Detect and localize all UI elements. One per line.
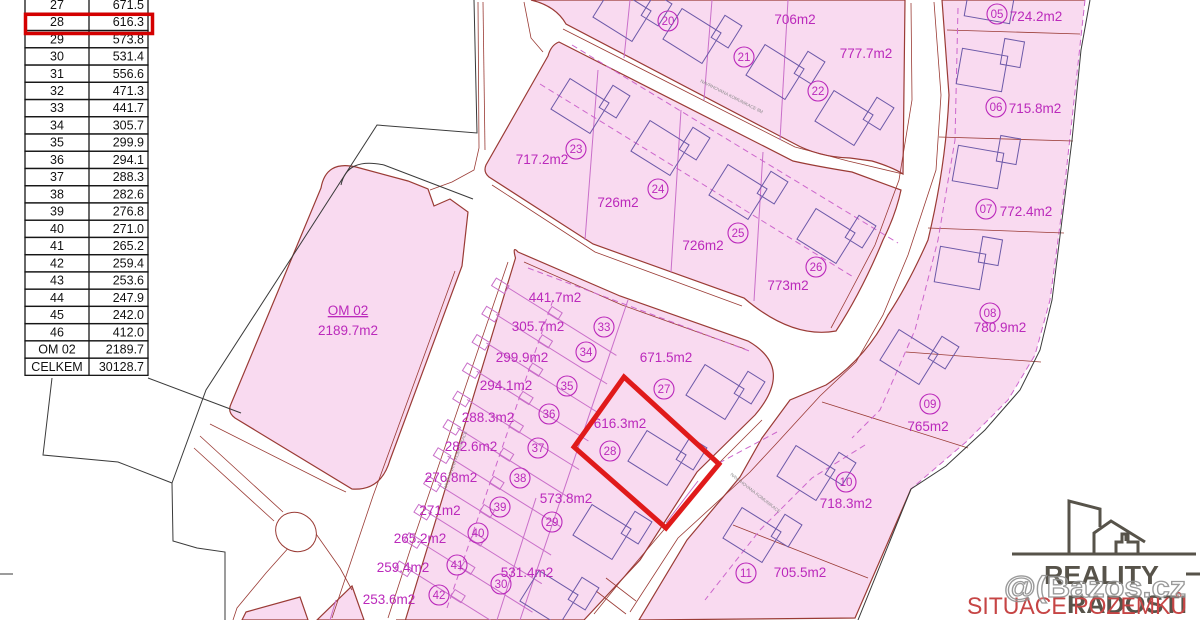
svg-text:671.5m2: 671.5m2 xyxy=(640,350,693,365)
svg-text:CELKEM: CELKEM xyxy=(31,360,82,374)
svg-text:32: 32 xyxy=(50,84,64,98)
svg-text:288.3m2: 288.3m2 xyxy=(462,410,515,425)
svg-text:717.2m2: 717.2m2 xyxy=(516,152,569,167)
svg-text:OM 02: OM 02 xyxy=(328,303,369,318)
svg-text:28: 28 xyxy=(50,15,64,29)
svg-text:33: 33 xyxy=(50,101,64,115)
svg-text:724.2m2: 724.2m2 xyxy=(1010,9,1063,24)
svg-text:41: 41 xyxy=(451,560,464,572)
svg-text:294.1m2: 294.1m2 xyxy=(480,378,533,393)
svg-text:282.6m2: 282.6m2 xyxy=(445,439,498,454)
svg-text:38: 38 xyxy=(514,473,527,485)
svg-text:253.6m2: 253.6m2 xyxy=(363,592,416,607)
svg-text:471.3: 471.3 xyxy=(113,84,144,98)
svg-text:715.8m2: 715.8m2 xyxy=(1009,101,1062,116)
svg-text:299.9m2: 299.9m2 xyxy=(496,350,549,365)
svg-text:22: 22 xyxy=(812,86,825,98)
svg-text:616.3: 616.3 xyxy=(113,15,144,29)
svg-text:09: 09 xyxy=(924,399,937,411)
svg-text:11: 11 xyxy=(740,568,752,580)
svg-text:253.6: 253.6 xyxy=(113,274,144,288)
svg-text:27: 27 xyxy=(50,0,64,12)
svg-text:441.7m2: 441.7m2 xyxy=(529,290,582,305)
svg-text:259.4m2: 259.4m2 xyxy=(377,560,430,575)
svg-text:OM 02: OM 02 xyxy=(38,343,76,357)
svg-text:705.5m2: 705.5m2 xyxy=(774,565,827,580)
svg-text:@(Bazos.cz: @(Bazos.cz xyxy=(1004,571,1186,604)
svg-text:718.3m2: 718.3m2 xyxy=(820,496,873,511)
svg-text:05: 05 xyxy=(991,9,1004,21)
svg-text:531.4: 531.4 xyxy=(113,50,144,64)
svg-text:265.2: 265.2 xyxy=(113,239,144,253)
svg-text:30128.7: 30128.7 xyxy=(99,360,144,374)
svg-text:556.6: 556.6 xyxy=(113,67,144,81)
svg-text:305.7: 305.7 xyxy=(113,119,144,133)
svg-text:29: 29 xyxy=(546,517,559,529)
svg-text:45: 45 xyxy=(50,308,64,322)
svg-text:21: 21 xyxy=(738,52,751,64)
svg-text:271.0: 271.0 xyxy=(113,222,144,236)
svg-text:412.0: 412.0 xyxy=(113,325,144,339)
svg-text:780.9m2: 780.9m2 xyxy=(974,320,1027,335)
svg-text:305.7m2: 305.7m2 xyxy=(512,319,565,334)
svg-text:247.9: 247.9 xyxy=(113,291,144,305)
svg-text:10: 10 xyxy=(840,477,853,489)
svg-text:282.6: 282.6 xyxy=(113,187,144,201)
svg-text:276.8m2: 276.8m2 xyxy=(425,470,478,485)
svg-text:33: 33 xyxy=(598,322,611,334)
svg-text:44: 44 xyxy=(50,291,64,305)
svg-text:34: 34 xyxy=(580,347,593,359)
svg-text:41: 41 xyxy=(50,239,64,253)
svg-text:765m2: 765m2 xyxy=(907,419,948,434)
svg-text:294.1: 294.1 xyxy=(113,153,144,167)
svg-text:36: 36 xyxy=(543,409,556,421)
svg-text:265.2m2: 265.2m2 xyxy=(394,531,447,546)
svg-text:31: 31 xyxy=(50,67,64,81)
svg-text:2189.7m2: 2189.7m2 xyxy=(318,323,378,338)
svg-text:30: 30 xyxy=(50,50,64,64)
svg-text:37: 37 xyxy=(532,443,545,455)
svg-text:37: 37 xyxy=(50,170,64,184)
svg-text:39: 39 xyxy=(494,502,507,514)
svg-text:30: 30 xyxy=(495,579,508,591)
svg-text:23: 23 xyxy=(570,144,583,156)
svg-text:299.9: 299.9 xyxy=(113,136,144,150)
svg-text:34: 34 xyxy=(50,119,64,133)
svg-text:42: 42 xyxy=(433,590,446,602)
svg-text:726m2: 726m2 xyxy=(682,238,723,253)
svg-text:28: 28 xyxy=(604,446,617,458)
svg-text:40: 40 xyxy=(472,528,485,540)
svg-text:726m2: 726m2 xyxy=(597,195,638,210)
svg-text:40: 40 xyxy=(50,222,64,236)
svg-text:39: 39 xyxy=(50,205,64,219)
svg-text:26: 26 xyxy=(810,262,823,274)
svg-text:276.8: 276.8 xyxy=(113,205,144,219)
svg-text:777.7m2: 777.7m2 xyxy=(840,46,893,61)
svg-text:08: 08 xyxy=(984,308,997,320)
svg-text:288.3: 288.3 xyxy=(113,170,144,184)
svg-text:20: 20 xyxy=(662,16,675,28)
svg-text:38: 38 xyxy=(50,187,64,201)
svg-text:46: 46 xyxy=(50,325,64,339)
svg-text:35: 35 xyxy=(50,136,64,150)
svg-text:06: 06 xyxy=(990,102,1003,114)
svg-text:706m2: 706m2 xyxy=(774,12,815,27)
svg-text:271m2: 271m2 xyxy=(419,503,460,518)
svg-text:773m2: 773m2 xyxy=(767,278,808,293)
svg-text:772.4m2: 772.4m2 xyxy=(1000,204,1053,219)
svg-text:43: 43 xyxy=(50,274,64,288)
svg-text:2189.7: 2189.7 xyxy=(106,343,144,357)
svg-text:616.3m2: 616.3m2 xyxy=(594,416,647,431)
svg-text:573.8m2: 573.8m2 xyxy=(540,491,593,506)
svg-text:07: 07 xyxy=(980,204,993,216)
svg-text:36: 36 xyxy=(50,153,64,167)
svg-text:35: 35 xyxy=(561,381,574,393)
svg-text:259.4: 259.4 xyxy=(113,256,144,270)
svg-text:42: 42 xyxy=(50,256,64,270)
svg-text:27: 27 xyxy=(658,384,671,396)
svg-text:24: 24 xyxy=(652,184,665,196)
svg-text:242.0: 242.0 xyxy=(113,308,144,322)
svg-text:25: 25 xyxy=(732,228,745,240)
svg-text:671.5: 671.5 xyxy=(113,0,144,12)
svg-text:441.7: 441.7 xyxy=(113,101,144,115)
